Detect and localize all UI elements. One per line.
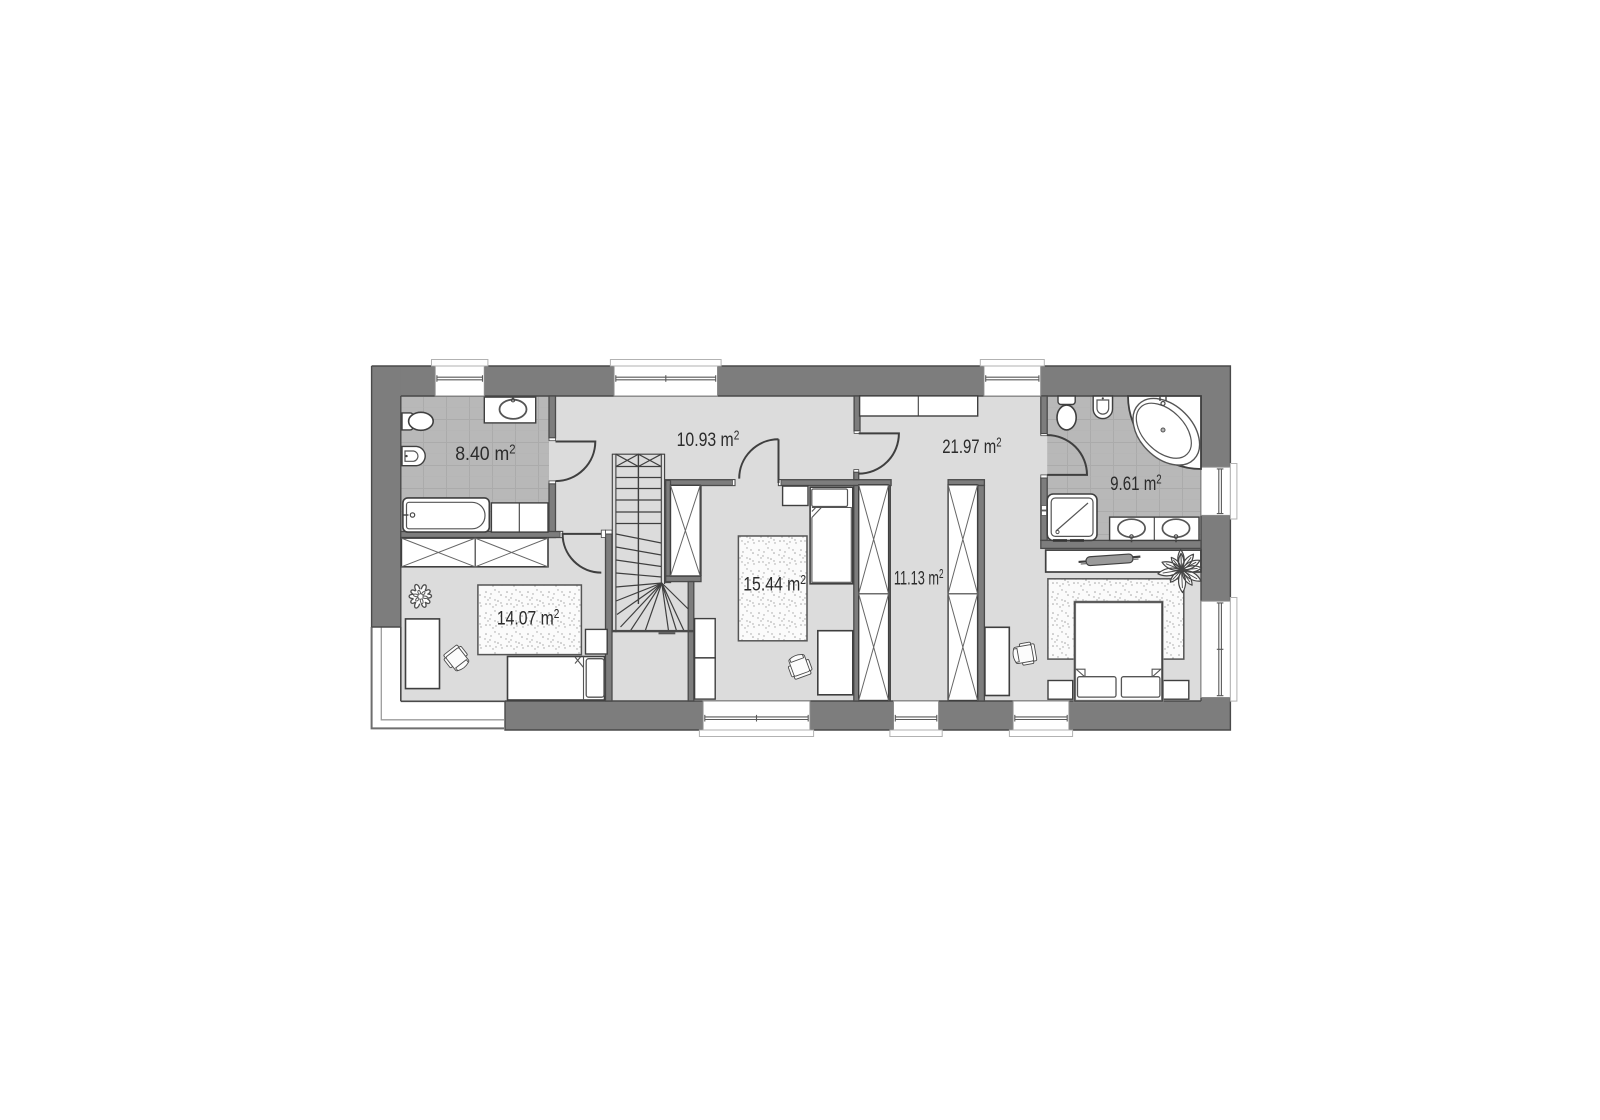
svg-text:10.93 m2: 10.93 m2 — [677, 428, 740, 451]
svg-text:9.61 m2: 9.61 m2 — [1110, 472, 1162, 495]
svg-text:15.44 m2: 15.44 m2 — [743, 573, 806, 596]
svg-text:21.97 m2: 21.97 m2 — [942, 436, 1001, 459]
svg-text:11.13 m2: 11.13 m2 — [894, 567, 944, 590]
svg-text:14.07 m2: 14.07 m2 — [497, 607, 559, 630]
svg-text:8.40 m2: 8.40 m2 — [455, 442, 515, 465]
